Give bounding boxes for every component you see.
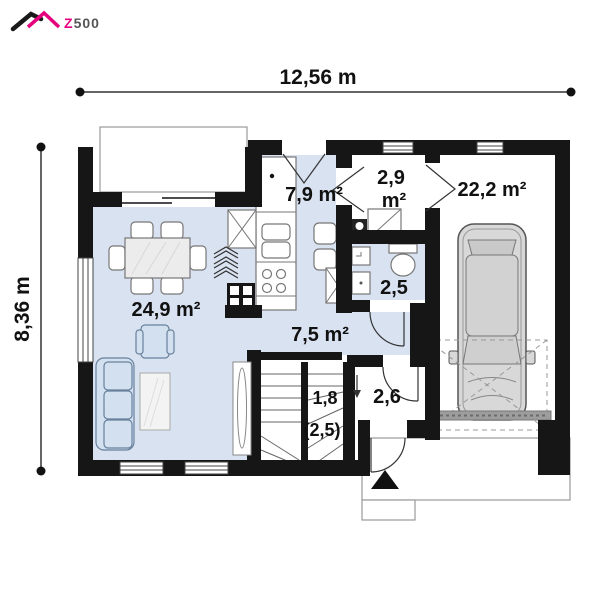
hall-29-label-line2: m² [382,190,407,212]
window-living-terrace-slider [122,194,215,207]
bathroom-label: 2,5 [380,277,408,299]
wall-kitchen-south-stub [225,305,262,318]
stair-stringer [301,362,308,463]
window-hall-north [383,142,413,153]
rug [140,373,170,430]
washbasin-icon [352,247,370,265]
terrace [100,127,247,192]
dining-chair [109,246,125,270]
logo-text: Z500 [64,15,100,31]
living-room-label: 24,9 m² [132,299,201,321]
wall-terrace-side [245,147,262,207]
dining-table [125,238,190,278]
wall-bath-south-stub [348,300,370,312]
car-roof [466,255,518,336]
wall-corridor-east [410,303,425,367]
kitchen-label: 7,9 m² [285,184,343,206]
floorplan-canvas: 24,9 m² 7,9 m² 2,9 m² 22,2 m² 2,5 7,5 m²… [0,0,600,600]
dining-chair [161,222,183,239]
window-garage-north [477,142,503,153]
brand-logo: Z500 [13,13,100,31]
living-room-door-panel [233,362,251,455]
tall-cabinet-icon [228,210,256,248]
dining-chair [131,222,153,239]
dining-chair [190,246,206,270]
corridor-label: 7,5 m² [291,324,349,346]
logo-text-500: 500 [74,15,100,31]
car [449,224,535,420]
dimension-height-label: 8,36 m [11,276,34,341]
car-rear-window [468,240,516,255]
wall-stair-east [343,362,355,463]
dimension-height: 8,36 m [11,143,46,476]
wall-frontdoor-left [358,420,370,438]
dining-chair [131,277,153,294]
stairs-label-line1: 1,8 [312,388,337,408]
vestibule-label: 2,6 [373,386,401,408]
logo-text-z: Z [64,15,74,31]
garage-label: 22,2 m² [458,179,527,201]
toilet-icon [389,244,417,276]
armchair [136,325,174,358]
dining-chair [161,277,183,294]
wall-garage-corner [538,420,570,475]
hall-29-label-line1: 2,9 [377,167,405,189]
wall-kitchen-bath [336,205,352,313]
wall-hall-bath [336,230,425,244]
wall-kitchen-hall-upper [336,155,352,168]
wall-living-top-right [215,192,248,207]
kitchen-rear-door-opening [282,140,326,155]
window-living-west [78,258,93,362]
floorplan-page: 24,9 m² 7,9 m² 2,9 m² 22,2 m² 2,5 7,5 m²… [0,0,600,600]
stair-top-edge [247,352,342,360]
window-living-south-2 [185,462,228,474]
wall-living-top-left [93,192,122,207]
wall-connector [358,438,370,462]
counter-fixture-dot [270,174,274,178]
wall-right [555,140,570,432]
sofa [96,358,134,450]
stairs-label-line2: (2,5) [303,420,340,440]
bath-cabinet-icon [352,272,370,294]
porch-step [362,500,415,520]
window-living-south-1 [120,462,163,474]
dimension-width: 12,56 m [76,66,576,97]
dimension-width-label: 12,56 m [279,66,356,89]
